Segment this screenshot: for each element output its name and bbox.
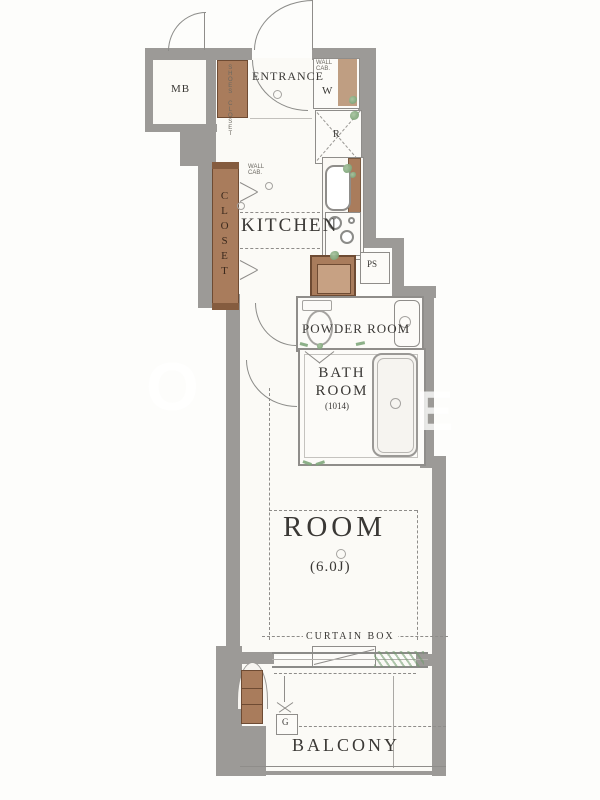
balcony-floor bbox=[242, 660, 434, 772]
balcony-outer-edge bbox=[240, 771, 446, 775]
dashed-line bbox=[240, 212, 320, 213]
entrance-door-leaf bbox=[312, 0, 313, 50]
stove-knob bbox=[348, 217, 355, 224]
entrance-label: ENTRANCE bbox=[252, 70, 324, 83]
dashed-line bbox=[240, 248, 320, 249]
room-symbol bbox=[336, 549, 346, 559]
wall bbox=[226, 300, 240, 660]
door-stop-symbol bbox=[265, 182, 273, 190]
entrance-door-arc bbox=[254, 0, 313, 50]
door-stop-symbol bbox=[237, 202, 245, 210]
mb-door-arc bbox=[168, 12, 206, 51]
gas-pipe-line bbox=[284, 676, 285, 702]
watermark-letter: E bbox=[416, 378, 453, 443]
powder-room-label: POWDER ROOM bbox=[302, 322, 410, 336]
wall bbox=[432, 460, 446, 776]
counter-sink bbox=[317, 264, 351, 294]
fridge-label: R bbox=[333, 130, 340, 141]
dashed-line bbox=[274, 673, 416, 674]
room-label: ROOM bbox=[283, 512, 386, 542]
entrance-symbol bbox=[273, 90, 282, 99]
bathroom-label-line1: BATH bbox=[313, 366, 371, 382]
watermark-letter: O bbox=[146, 348, 199, 426]
room-size-label: (6.0J) bbox=[310, 560, 351, 576]
stove-burner bbox=[340, 230, 354, 244]
closet-end-cap bbox=[212, 162, 239, 169]
closet-label: CLOSET bbox=[218, 190, 230, 280]
dashed-line bbox=[269, 388, 270, 640]
shoes-closet: SHOES CLOSET bbox=[217, 60, 248, 118]
balcony-label: BALCONY bbox=[292, 736, 400, 755]
closet-end-cap bbox=[212, 303, 239, 310]
bathroom-label-line2: ROOM bbox=[310, 384, 374, 400]
floor-plan: SHOES CLOSET CLOSET WALL CAB. W R KITCHE… bbox=[0, 0, 600, 800]
storage-shelf-line bbox=[242, 688, 262, 689]
shoes-closet-label: SHOES CLOSET bbox=[227, 65, 233, 137]
mb-label: MB bbox=[171, 84, 190, 96]
plant-hatch bbox=[374, 651, 424, 667]
wall bbox=[145, 48, 153, 132]
bathtub-drain bbox=[390, 398, 401, 409]
entrance-step-line bbox=[250, 118, 312, 119]
wall-cabinet-label: WALL CAB. bbox=[248, 164, 270, 177]
ps-label: PS bbox=[367, 260, 377, 269]
kitchen-label: KITCHEN bbox=[241, 216, 338, 236]
washer-label: W bbox=[322, 86, 332, 98]
gas-meter-label: G bbox=[282, 718, 289, 727]
wall bbox=[216, 726, 266, 776]
wall bbox=[206, 56, 216, 126]
curtain-box-label: CURTAIN BOX bbox=[303, 632, 398, 643]
dashed-line bbox=[417, 510, 418, 640]
bathroom-size-label: (1014) bbox=[325, 402, 349, 411]
storage-shelf-line bbox=[242, 704, 262, 705]
balcony-edge-line bbox=[240, 766, 446, 767]
storage-unit bbox=[241, 670, 263, 724]
dashed-line bbox=[294, 726, 446, 727]
mb-door-leaf bbox=[204, 12, 205, 50]
